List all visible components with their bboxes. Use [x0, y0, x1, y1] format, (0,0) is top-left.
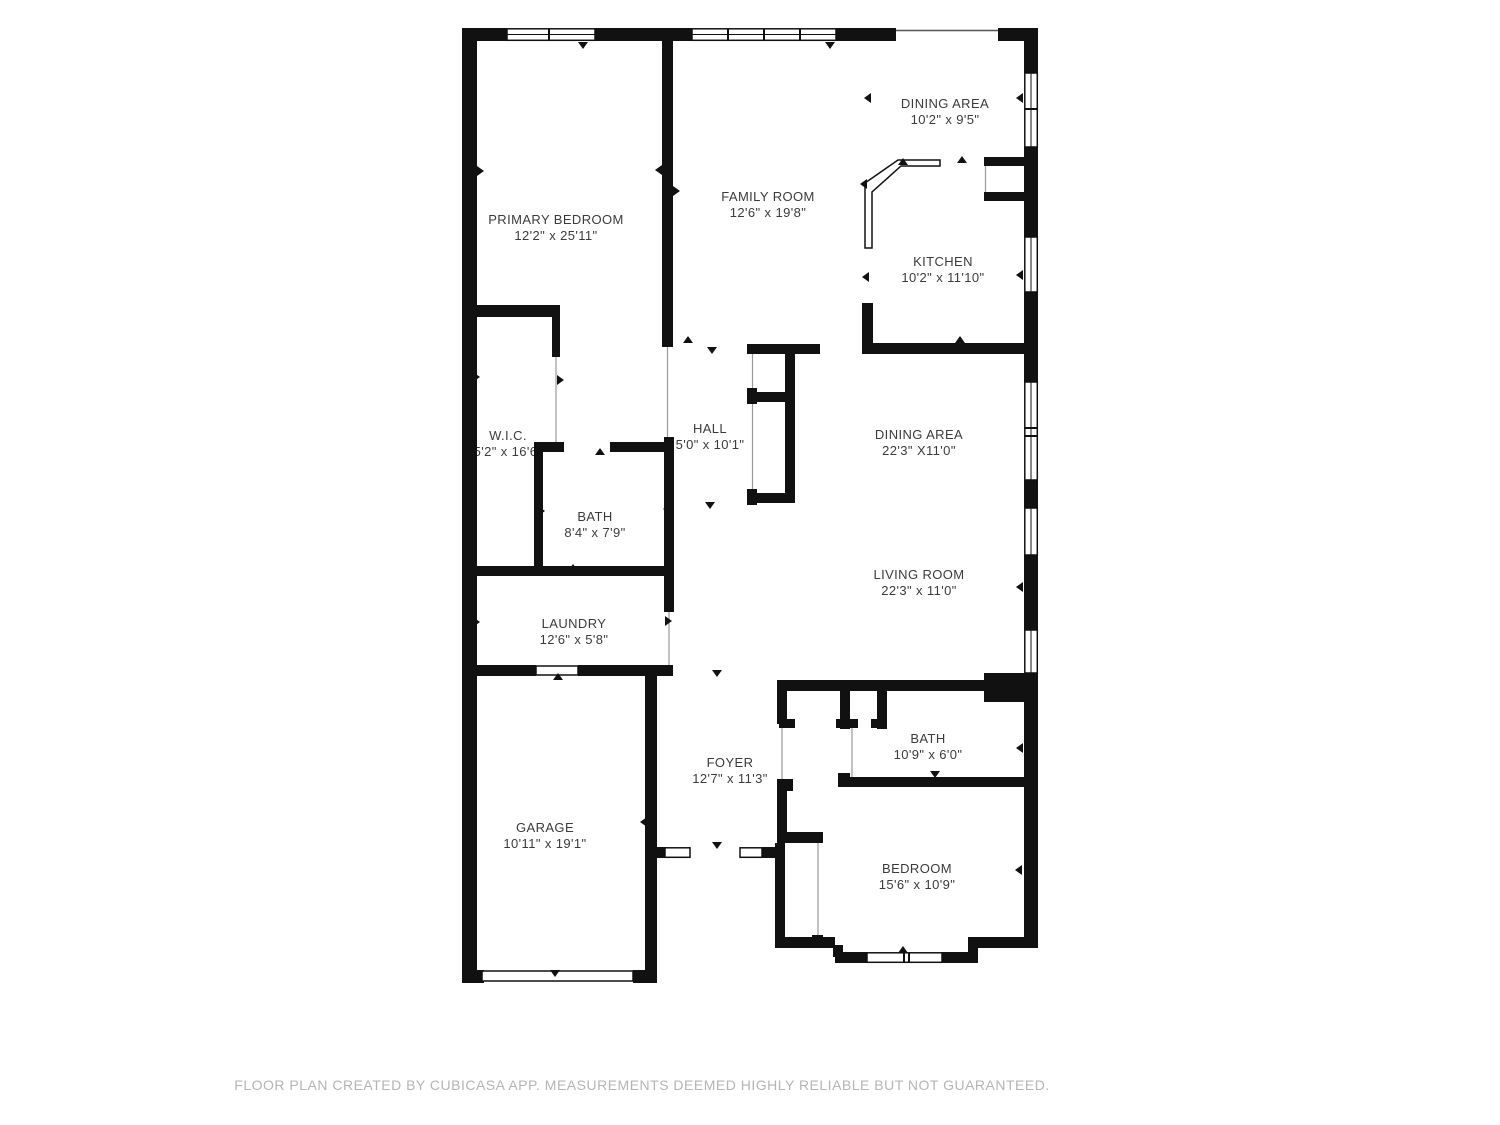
door-marker — [578, 42, 588, 49]
door-marker — [712, 670, 722, 677]
door-marker — [707, 347, 717, 354]
room-label-living-room: LIVING ROOM 22'3" x 11'0" — [873, 567, 964, 598]
door-marker — [898, 946, 908, 953]
footer-disclaimer: FLOOR PLAN CREATED BY CUBICASA APP. MEAS… — [234, 1077, 1049, 1093]
room-dims: 5'0" x 10'1" — [676, 437, 745, 452]
entry-sidelight-window — [665, 848, 690, 858]
room-dims: 12'6" x 19'8" — [730, 205, 807, 220]
room-label-kitchen: KITCHEN 10'2" x 11'10" — [901, 254, 984, 285]
room-label-dining-area-top: DINING AREA 10'2" x 9'5" — [901, 96, 989, 127]
kitchen-counter — [865, 160, 940, 248]
room-dims: 10'9" x 6'0" — [894, 747, 963, 762]
labels-layer: DINING AREA 10'2" x 9'5" FAMILY ROOM 12'… — [488, 96, 989, 892]
door-marker — [955, 336, 965, 343]
room-name: BATH — [910, 731, 945, 746]
floor-plan-page: W.I.C. 5'2" x 16'6" — [0, 0, 1500, 1125]
room-name: DINING AREA — [901, 96, 989, 111]
room-label-laundry: LAUNDRY 12'6" x 5'8" — [540, 616, 609, 647]
door-marker — [673, 186, 680, 196]
room-dims: 10'2" x 9'5" — [911, 112, 980, 127]
room-dims: 22'3" X11'0" — [882, 443, 956, 458]
room-label-garage: GARAGE 10'11" x 19'1" — [503, 820, 586, 851]
door-marker — [860, 179, 867, 189]
room-label-primary-bedroom: PRIMARY BEDROOM 12'2" x 25'11" — [488, 212, 624, 243]
room-dims: 15'6" x 10'9" — [879, 877, 956, 892]
room-dims: 12'6" x 5'8" — [540, 632, 609, 647]
door-marker — [655, 165, 662, 175]
door-marker — [864, 93, 871, 103]
door-marker — [1016, 270, 1023, 280]
room-dims: 12'2" x 25'11" — [514, 228, 597, 243]
door-marker — [930, 771, 940, 778]
door-marker — [862, 272, 869, 282]
room-name: PRIMARY BEDROOM — [488, 212, 624, 227]
room-dims: 8'4" x 7'9" — [564, 525, 625, 540]
room-name: DINING AREA — [875, 427, 963, 442]
door-marker — [595, 448, 605, 455]
room-dims: 22'3" x 11'0" — [881, 583, 957, 598]
room-name: BEDROOM — [882, 861, 952, 876]
laundry-door-opening — [536, 666, 578, 675]
room-name: W.I.C. — [489, 428, 527, 443]
room-label-wic: W.I.C. 5'2" x 16'6" — [474, 428, 543, 459]
room-label-foyer: FOYER 12'7" x 11'3" — [692, 755, 768, 786]
room-label-dining-area-main: DINING AREA 22'3" X11'0" — [875, 427, 963, 458]
door-marker — [1016, 582, 1023, 592]
room-name: FOYER — [707, 755, 754, 770]
room-name: LAUNDRY — [542, 616, 607, 631]
entry-sidelight-window — [740, 848, 762, 858]
floor-plan: W.I.C. 5'2" x 16'6" — [0, 0, 1500, 1125]
door-marker — [705, 502, 715, 509]
room-label-bedroom: BEDROOM 15'6" x 10'9" — [879, 861, 956, 892]
door-marker — [1016, 93, 1023, 103]
room-label-bath-lower: BATH 10'9" x 6'0" — [894, 731, 963, 762]
room-name: BATH — [577, 509, 612, 524]
door-marker — [683, 336, 693, 343]
room-name: HALL — [693, 421, 727, 436]
door-marker — [825, 42, 835, 49]
door-marker — [712, 842, 722, 849]
door-marker — [957, 156, 967, 163]
door-marker — [557, 375, 564, 385]
room-name: GARAGE — [516, 820, 574, 835]
door-marker — [1015, 865, 1022, 875]
door-marker — [1016, 743, 1023, 753]
door-marker — [640, 817, 647, 827]
room-dims: 10'11" x 19'1" — [503, 836, 586, 851]
room-name: FAMILY ROOM — [721, 189, 815, 204]
room-dims: 10'2" x 11'10" — [901, 270, 984, 285]
room-dims: 12'7" x 11'3" — [692, 771, 768, 786]
door-marker — [477, 166, 484, 176]
room-dims: 5'2" x 16'6" — [474, 444, 543, 459]
room-label-bath-upper: BATH 8'4" x 7'9" — [564, 509, 625, 540]
room-name: KITCHEN — [913, 254, 973, 269]
room-label-hall: HALL 5'0" x 10'1" — [676, 421, 745, 452]
room-name: LIVING ROOM — [873, 567, 964, 582]
room-label-family-room: FAMILY ROOM 12'6" x 19'8" — [721, 189, 815, 220]
